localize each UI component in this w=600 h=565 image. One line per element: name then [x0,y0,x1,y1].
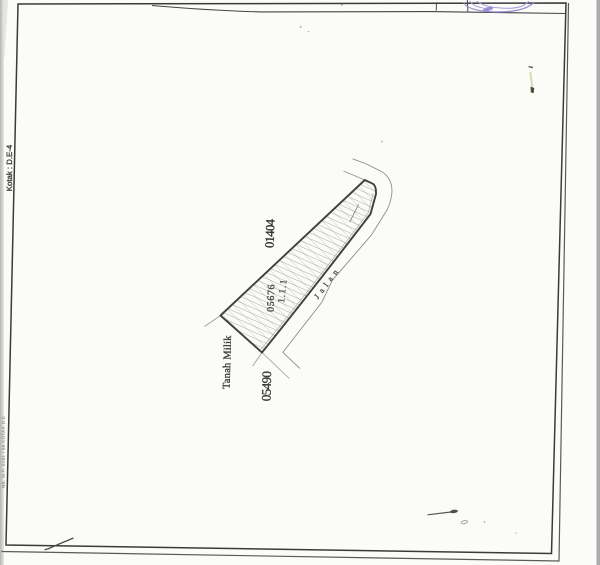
svg-text:NB. W.P. 0281 / 86 KOTAK D.E: NB. W.P. 0281 / 86 KOTAK D.E [1,416,6,488]
svg-text:05490: 05490 [259,371,275,401]
svg-text:Tanah Milik: Tanah Milik [222,335,234,389]
svg-text:Kotak : D.E-4: Kotak : D.E-4 [5,144,14,191]
svg-text:05676: 05676 [266,284,278,312]
svg-text:01404: 01404 [263,218,278,248]
